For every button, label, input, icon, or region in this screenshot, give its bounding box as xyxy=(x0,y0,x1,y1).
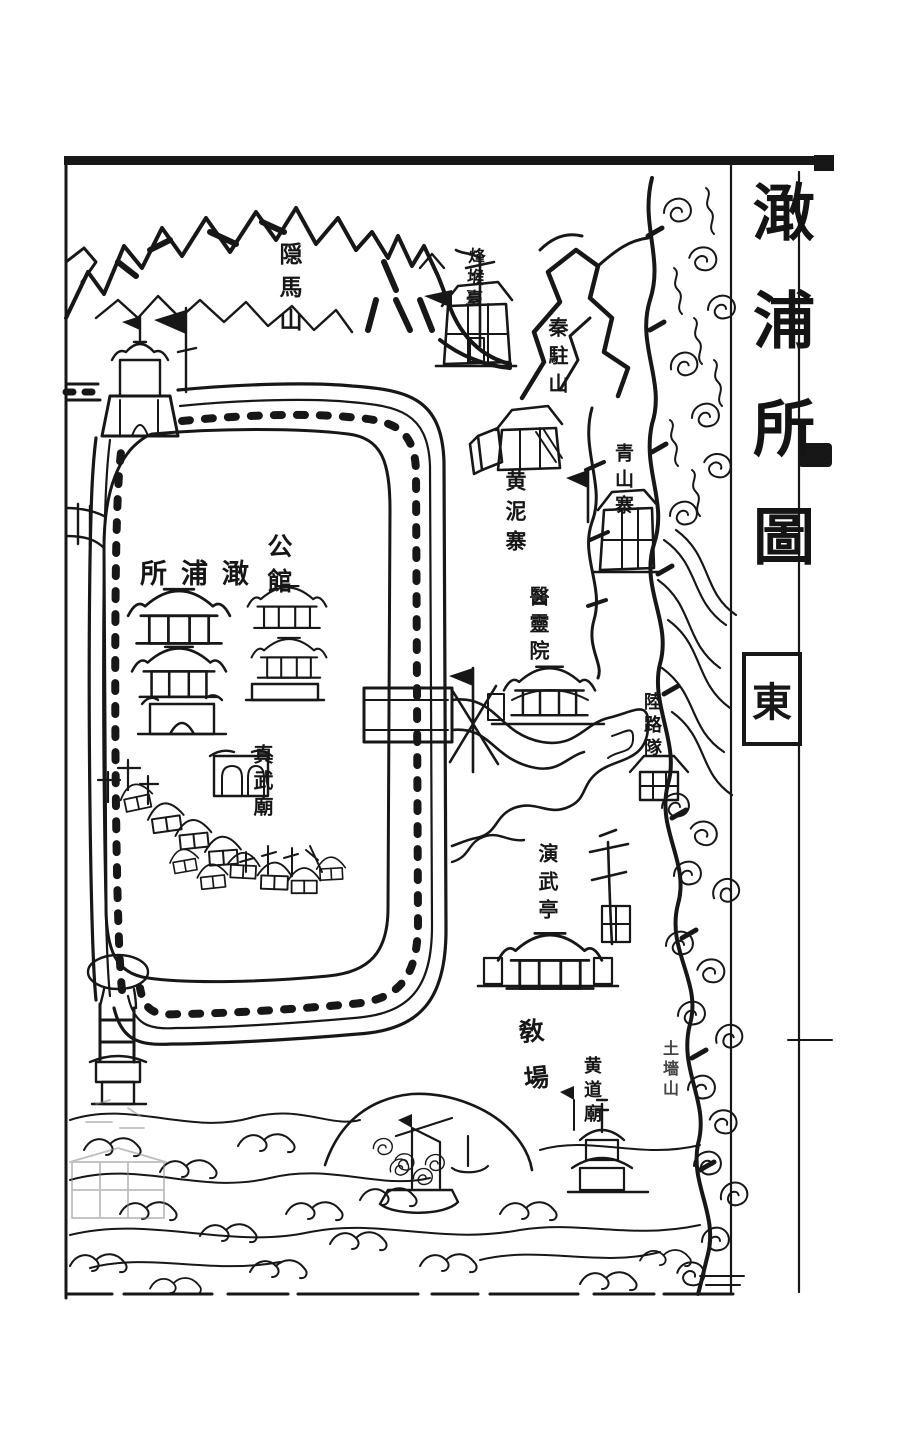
label-ganpu-suo: 所浦澉 xyxy=(140,552,263,591)
huangdao-shrine xyxy=(560,1086,648,1192)
yiling-temple-building xyxy=(488,667,604,724)
public-hall-building xyxy=(246,586,326,700)
label-qingshan-zhai: 青山寨 xyxy=(613,443,632,521)
label-yinma-shan: 隠馬山 xyxy=(276,242,299,341)
label-zhenwu-miao: 真武廟 xyxy=(252,744,272,822)
woodblock-map-page: 澉浦所圖 東 隠馬山 烽堠臺 秦駐山 黄泥寨 青山寨 所浦澉 公館 醫靈院 真武… xyxy=(0,0,912,1440)
label-huangdao-miao: 黄道廟 xyxy=(582,1056,600,1128)
ganpu-garrison-compound xyxy=(128,589,230,734)
label-huangni-zhai: 黄泥寨 xyxy=(504,470,525,560)
page-title: 澉浦所圖 xyxy=(733,180,823,612)
label-gong-guan: 公館 xyxy=(266,533,291,603)
label-yiling-yuan: 醫靈院 xyxy=(528,586,548,667)
compass-east-box: 東 xyxy=(742,652,802,746)
northwest-gate-tower xyxy=(102,308,196,436)
label-qinzhu-shan: 秦駐山 xyxy=(547,317,567,401)
shore-island xyxy=(325,1094,532,1185)
label-tuqiang-shan: 土墻山 xyxy=(661,1040,677,1100)
label-lulu-dui: 陸路隊 xyxy=(642,692,660,761)
compass-east-label: 東 xyxy=(752,670,792,728)
boats xyxy=(380,1114,488,1213)
label-fenghou-tai: 烽堠臺 xyxy=(462,246,483,310)
huangni-fort-buildings xyxy=(470,406,562,474)
label-yanwu-ting: 演武亭 xyxy=(537,843,557,927)
